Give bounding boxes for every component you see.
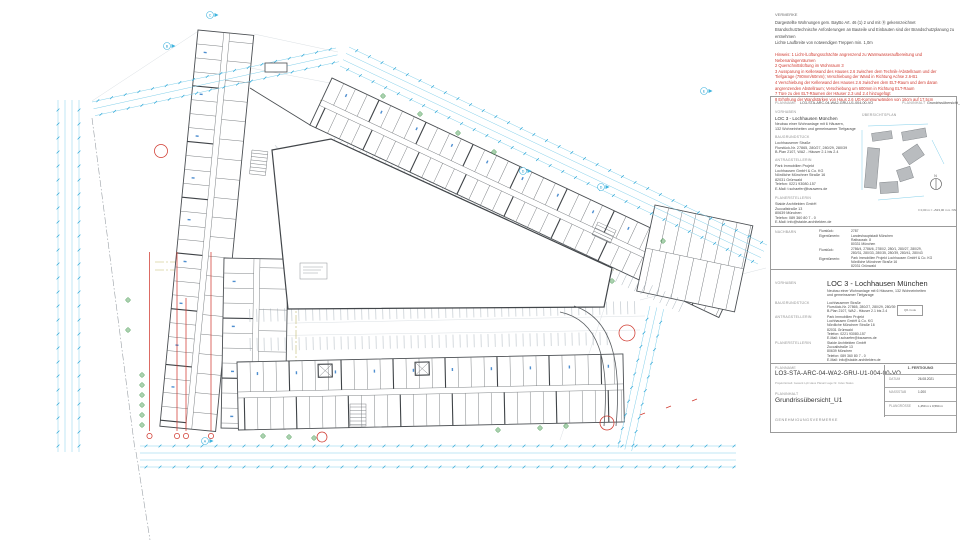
date-label: DATUM bbox=[889, 377, 900, 381]
planinhalt-label: PLANINHALT bbox=[902, 101, 925, 105]
general-notes: Dargestellte Wohnungen gem. BayBo Art. 4… bbox=[775, 20, 955, 47]
notes-heading: VERMERKE bbox=[775, 12, 955, 17]
svg-text:C: C bbox=[209, 13, 212, 17]
approval-notes-label: GENEHMIGUNGSVERMERKE bbox=[775, 418, 838, 422]
size-label: PLANGRÖSSE bbox=[889, 404, 911, 408]
grundstueck-label: BAUGRUNDSTÜCK bbox=[775, 135, 810, 139]
planname-value: LO3-STA-ARC-04-WA2-GRU-U1-004-00-VO bbox=[800, 101, 873, 105]
planerstellerin-lines: Staide Architekten GmbH Zuccalistraße 13… bbox=[827, 341, 881, 362]
flurstueck-label-2: Flurstück: bbox=[819, 248, 834, 252]
eigentuemerin-label-1: Eigentümerin: bbox=[819, 234, 840, 238]
grundstueck-lines: Lochhausener Straße Flurstück-Nr. 27865,… bbox=[827, 301, 896, 314]
overview-caption: ± 0,00 m = +523,00 m ü. NN bbox=[858, 208, 956, 212]
qr-code-box: QR-Code bbox=[897, 305, 923, 316]
revision-notes: Hinweis: 1 Licht-/Lüftungsschächte angre… bbox=[775, 52, 957, 102]
flurstueck-value-1: 2787 bbox=[851, 229, 859, 233]
courtyard-note-box bbox=[300, 263, 327, 279]
svg-text:D: D bbox=[600, 185, 603, 189]
project-title: LOC 3 - Lochhausen München bbox=[827, 279, 928, 288]
flurstueck-label-1: Flurstück: bbox=[819, 229, 834, 233]
eigentuemerin-value-2: Park Immobilien Projekt Lochhausen GmbH … bbox=[851, 257, 932, 269]
date-value: 26.08.2021 bbox=[918, 377, 934, 381]
planerstellerin-label: PLANERSTELLERIN bbox=[775, 341, 811, 345]
planinhalt-value: Grundrissübersicht_U1 bbox=[927, 101, 960, 105]
antragstellerin-lines: Park Immobilien Projekt Lochhausen GmbH … bbox=[775, 164, 827, 191]
eigentuemerin-label-2: Eigentümerin: bbox=[819, 257, 840, 261]
vorhaben-title: LOC 3 - Lochhausen München bbox=[775, 116, 838, 121]
plan-content-title: Grundrissübersicht_U1 bbox=[775, 397, 842, 404]
title-block: VERMERKE Dargestellte Wohnungen gem. Bay… bbox=[770, 0, 957, 542]
east-block bbox=[637, 205, 753, 312]
project-desc: Neubau einer Wohnanlage mit 6 Häusern, 1… bbox=[827, 289, 926, 298]
overview-heading: ÜBERSICHTSPLAN bbox=[862, 113, 897, 117]
scale-value: 1:200 bbox=[918, 390, 926, 394]
neighbors-heading: NACHBARN bbox=[775, 230, 796, 234]
size-value: 1,450 m x 0,594 m bbox=[918, 404, 943, 408]
svg-text:D: D bbox=[522, 169, 525, 173]
eigentuemerin-value-1: Landeshauptstadt München Rathausstr. 8 8… bbox=[851, 234, 893, 246]
vorhaben-label: VORHABEN bbox=[775, 110, 796, 114]
planname-label: PLANNAME bbox=[775, 101, 796, 105]
antragstellerin-label: ANTRAGSTELLERIN bbox=[775, 315, 812, 319]
antragstellerin-label: ANTRAGSTELLERIN bbox=[775, 158, 812, 162]
notes-section: VERMERKE Dargestellte Wohnungen gem. Bay… bbox=[775, 12, 955, 17]
south-wing bbox=[237, 354, 624, 430]
planerstellerin-label: PLANERSTELLERIN bbox=[775, 196, 811, 200]
plan-number: LO3-STA-ARC-04-WA2-GRU-U1-004-00-VO bbox=[775, 371, 901, 377]
issue-heading: 1. FERTIGUNG bbox=[885, 366, 956, 370]
issue-block: 1. FERTIGUNG DATUM 26.08.2021 MASSSTAB 1… bbox=[884, 365, 956, 417]
stair-block bbox=[249, 150, 267, 176]
drawing-sheet: CBEDDA VERMERKE Dargestellte Wohnungen g… bbox=[0, 0, 960, 542]
vorhaben-desc: Neubau einer Wohnanlage mit 6 Häusern, 1… bbox=[775, 122, 856, 131]
north-arrow: N bbox=[931, 174, 942, 190]
overview-minimap: N bbox=[858, 120, 956, 206]
svg-text:N: N bbox=[934, 174, 937, 178]
plan-number-key: Projekt Erstell. Gewerk Lph Haus Planart… bbox=[775, 381, 854, 385]
scale-label: MASSSTAB bbox=[889, 390, 906, 394]
antragstellerin-lines: Park Immobilien Projekt Lochhausen GmbH … bbox=[827, 315, 877, 340]
planname-label: PLANNAME bbox=[775, 366, 796, 370]
property-line bbox=[136, 452, 150, 540]
vorhaben-label: VORHABEN bbox=[775, 281, 796, 285]
planinhalt-label: PLANINHALT bbox=[775, 392, 798, 396]
flurstueck-value-2: 2786/4, 2786/6, 2780/2, 280/1, 280/27, 2… bbox=[851, 248, 923, 256]
grundstueck-lines: Lochhausener Straße Flurstück-Nr. 27865,… bbox=[775, 141, 847, 155]
planerstellerin-lines: Staide Architekten GmbH Zuccalistraße 13… bbox=[775, 202, 831, 225]
grundstueck-label: BAUGRUNDSTÜCK bbox=[775, 301, 810, 305]
floor-plan-drawing: CBEDDA bbox=[0, 0, 768, 542]
